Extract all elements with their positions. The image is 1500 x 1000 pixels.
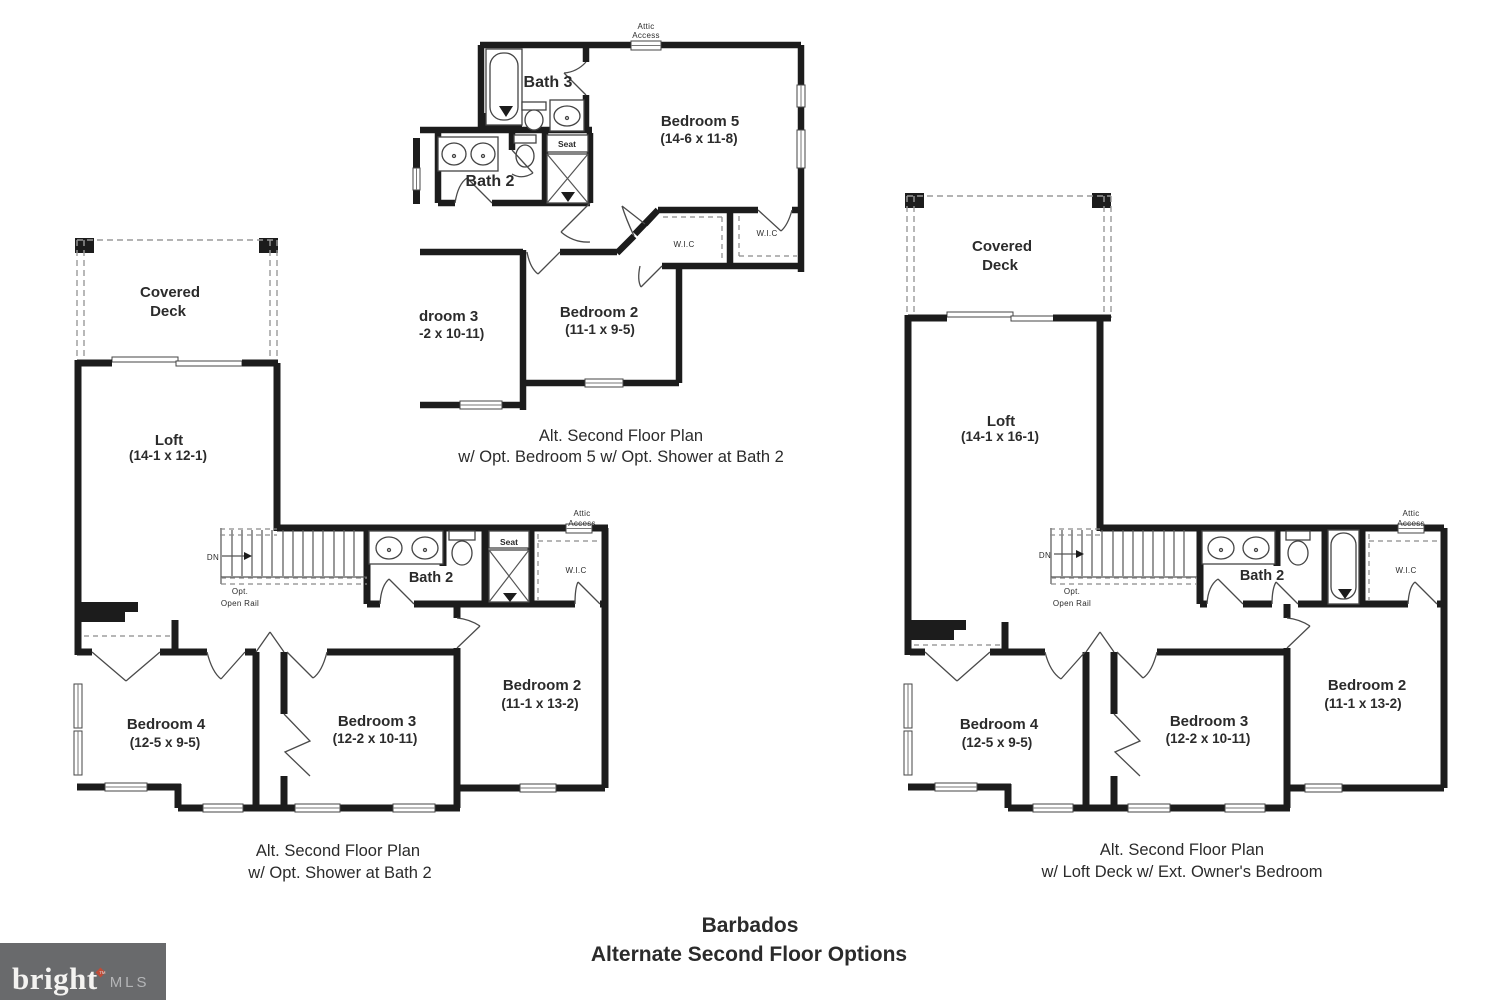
windows xyxy=(413,85,805,409)
wic-label: W.I.C xyxy=(565,566,586,575)
plan-caption: Alt. Second Floor Plan xyxy=(539,427,703,445)
trademark-symbol: ™ xyxy=(99,971,106,978)
brightmls-logo: bright ™ MLS xyxy=(0,943,166,1000)
walls xyxy=(420,45,801,410)
double-vanity-fixture xyxy=(369,531,443,564)
wall-stub xyxy=(413,190,420,204)
room-label-bedroom3-cut: droom 3 xyxy=(419,308,478,325)
double-vanity-fixture xyxy=(1202,531,1275,564)
room-dims-bedroom2: (11-1 x 13-2) xyxy=(501,696,578,711)
staircase xyxy=(220,528,367,584)
wall-chase xyxy=(910,630,954,640)
deck-label: Deck xyxy=(150,303,187,320)
deck-rail xyxy=(77,240,277,363)
open-rail-label: Opt. xyxy=(1064,587,1080,596)
dn-label: DN xyxy=(207,553,219,562)
room-label-bath3: Bath 3 xyxy=(524,74,573,91)
deck-post xyxy=(1092,193,1111,208)
plan-caption: w/ Opt. Shower at Bath 2 xyxy=(247,864,431,882)
wall-chase xyxy=(80,612,125,622)
open-rail-label: Open Rail xyxy=(1053,599,1091,608)
attic-access-label: Access xyxy=(632,31,660,40)
room-label-bedroom4: Bedroom 4 xyxy=(127,716,206,733)
room-dims-bedroom2: (11-1 x 9-5) xyxy=(565,322,635,337)
room-label-bath2: Bath 2 xyxy=(1240,568,1284,584)
room-dims-loft: (14-1 x 12-1) xyxy=(129,448,207,463)
room-dims-bedroom3: (12-2 x 10-11) xyxy=(333,731,418,746)
wall-chase xyxy=(910,620,966,630)
plan-loft-deck: Covered Deck Loft (14-1 x 16-1) DN Opt. … xyxy=(904,193,1444,881)
sheet-title: Barbados xyxy=(702,914,799,937)
open-rail-label: Opt. xyxy=(232,587,248,596)
room-label-bedroom3: Bedroom 3 xyxy=(1170,713,1248,730)
plan-caption: Alt. Second Floor Plan xyxy=(1100,841,1264,859)
plan-opt-shower: Covered Deck Loft (14-1 x 12-1) DN Opt. … xyxy=(74,238,608,882)
sheet-subtitle: Alternate Second Floor Options xyxy=(591,943,907,966)
room-label-bedroom2: Bedroom 2 xyxy=(503,677,581,694)
wic-label: W.I.C xyxy=(673,240,694,249)
room-label-bath2: Bath 2 xyxy=(409,570,453,586)
room-label-bath2: Bath 2 xyxy=(466,173,515,190)
plan-caption: w/ Loft Deck w/ Ext. Owner's Bedroom xyxy=(1041,863,1323,881)
room-label-bedroom3: Bedroom 3 xyxy=(338,713,416,730)
deck-label: Covered xyxy=(140,284,200,301)
plan-caption: Alt. Second Floor Plan xyxy=(256,842,420,860)
brightmls-wordmark: bright xyxy=(12,963,98,994)
sliding-door xyxy=(112,357,242,366)
deck-label: Deck xyxy=(982,257,1019,274)
room-dims-bedroom3: (12-2 x 10-11) xyxy=(1166,731,1251,746)
wic-label: W.I.C xyxy=(756,229,777,238)
sink-fixture xyxy=(550,100,584,131)
attic-access-label: Access xyxy=(568,519,596,528)
seat-label: Seat xyxy=(558,139,576,149)
wall-chase xyxy=(80,602,138,612)
attic-access-label: Attic xyxy=(1402,509,1419,518)
plan-opt-bedroom5: Attic Access Bath 3 Bedroom 5 (14-6 x 11… xyxy=(413,22,805,466)
toilet-fixture xyxy=(514,135,536,167)
plan-caption: w/ Opt. Bedroom 5 w/ Opt. Shower at Bath… xyxy=(457,448,784,466)
room-label-bedroom5: Bedroom 5 xyxy=(661,113,739,130)
room-dims-bedroom4: (12-5 x 9-5) xyxy=(130,735,201,750)
room-label-loft: Loft xyxy=(987,413,1015,430)
mls-suffix: MLS xyxy=(110,974,150,991)
toilet-fixture xyxy=(449,531,475,565)
attic-access-label: Attic xyxy=(637,22,654,31)
double-vanity-fixture xyxy=(438,137,498,171)
bathtub-fixture xyxy=(1328,530,1359,604)
room-dims-bedroom2: (11-1 x 13-2) xyxy=(1324,696,1401,711)
room-label-loft: Loft xyxy=(155,432,183,449)
attic-access-label: Access xyxy=(1397,519,1425,528)
toilet-fixture xyxy=(522,102,546,130)
room-label-bedroom2: Bedroom 2 xyxy=(560,304,638,321)
attic-access-label: Attic xyxy=(573,509,590,518)
wic-label: W.I.C xyxy=(1395,566,1416,575)
dn-label: DN xyxy=(1039,551,1051,560)
room-label-bedroom2: Bedroom 2 xyxy=(1328,677,1406,694)
floor-plan-sheet: Attic Access Bath 3 Bedroom 5 (14-6 x 11… xyxy=(0,0,1500,1000)
floor-plan-drawing: Attic Access Bath 3 Bedroom 5 (14-6 x 11… xyxy=(0,0,1500,1000)
staircase xyxy=(1050,528,1197,584)
room-dims-bedroom3-cut: -2 x 10-11) xyxy=(419,326,484,341)
wall-stub xyxy=(413,138,420,168)
deck-label: Covered xyxy=(972,238,1032,255)
attic-access-hatch xyxy=(631,41,661,50)
toilet-fixture xyxy=(1286,531,1310,565)
seat-label: Seat xyxy=(500,537,518,547)
room-dims-bedroom4: (12-5 x 9-5) xyxy=(962,735,1033,750)
room-dims-bedroom5: (14-6 x 11-8) xyxy=(660,131,737,146)
room-dims-loft: (14-1 x 16-1) xyxy=(961,429,1039,444)
room-label-bedroom4: Bedroom 4 xyxy=(960,716,1039,733)
bathtub-fixture xyxy=(486,49,522,125)
open-rail-label: Open Rail xyxy=(221,599,259,608)
